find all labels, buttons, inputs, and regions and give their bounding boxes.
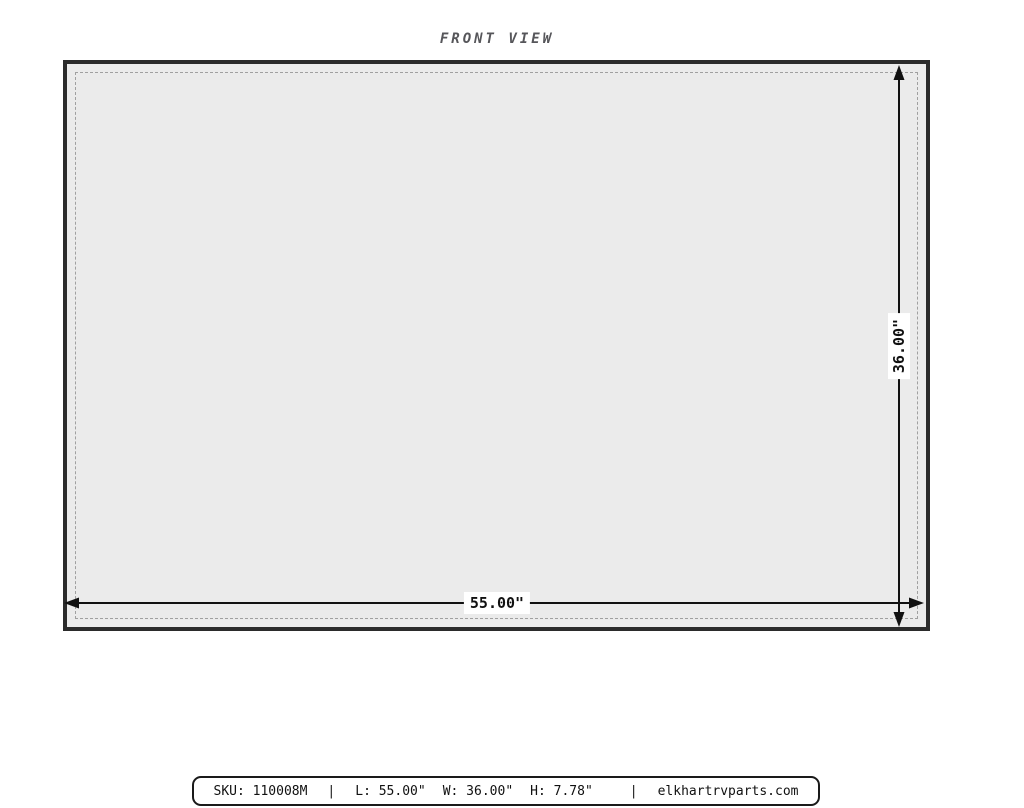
sku-text: SKU: 110008M (214, 784, 308, 799)
seal-dashed-outline (75, 72, 918, 619)
length-text: L: 55.00" (355, 784, 425, 799)
height-dimension-label: 36.00" (888, 313, 910, 379)
height-text: H: 7.78" (530, 784, 593, 799)
site-text: elkhartrvparts.com (658, 784, 799, 799)
sku-info-bar: SKU: 110008M | L: 55.00" W: 36.00" H: 7.… (192, 776, 820, 806)
part-outline-panel (63, 60, 930, 631)
front-view-diagram: FRONT VIEW 55.00" 36.00" SKU: 110008M | … (0, 0, 1024, 808)
footer-separator: | (327, 784, 335, 799)
view-title: FRONT VIEW (0, 31, 994, 47)
footer-separator: | (630, 784, 638, 799)
width-dimension-label: 55.00" (464, 592, 530, 614)
width-text: W: 36.00" (443, 784, 513, 799)
